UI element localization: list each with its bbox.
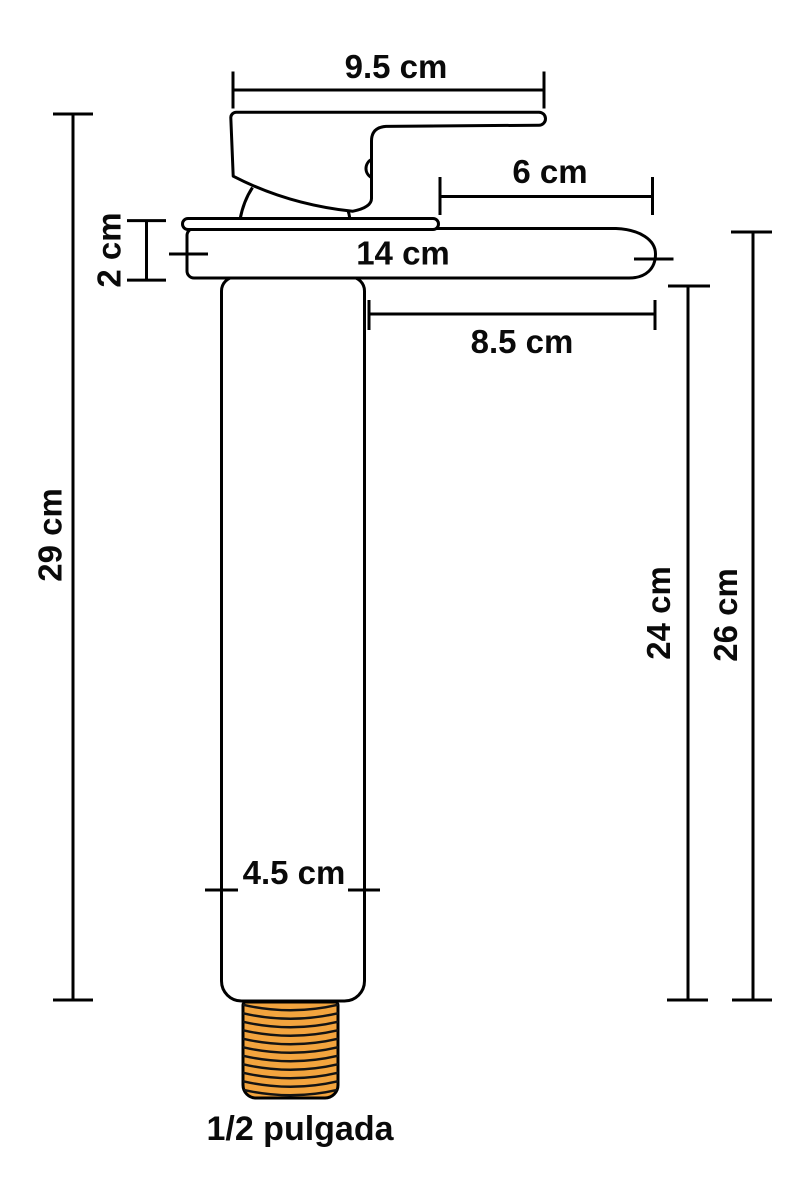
svg-text:2 cm: 2 cm	[91, 212, 128, 287]
svg-text:1/2 pulgada: 1/2 pulgada	[206, 1110, 394, 1148]
svg-text:9.5 cm: 9.5 cm	[345, 48, 448, 85]
svg-text:14 cm: 14 cm	[356, 235, 450, 272]
svg-text:8.5 cm: 8.5 cm	[471, 323, 574, 360]
svg-text:24 cm: 24 cm	[640, 566, 677, 660]
svg-text:4.5 cm: 4.5 cm	[243, 854, 346, 891]
svg-text:29 cm: 29 cm	[32, 488, 69, 582]
svg-text:26 cm: 26 cm	[707, 568, 744, 662]
svg-text:6 cm: 6 cm	[512, 153, 587, 190]
